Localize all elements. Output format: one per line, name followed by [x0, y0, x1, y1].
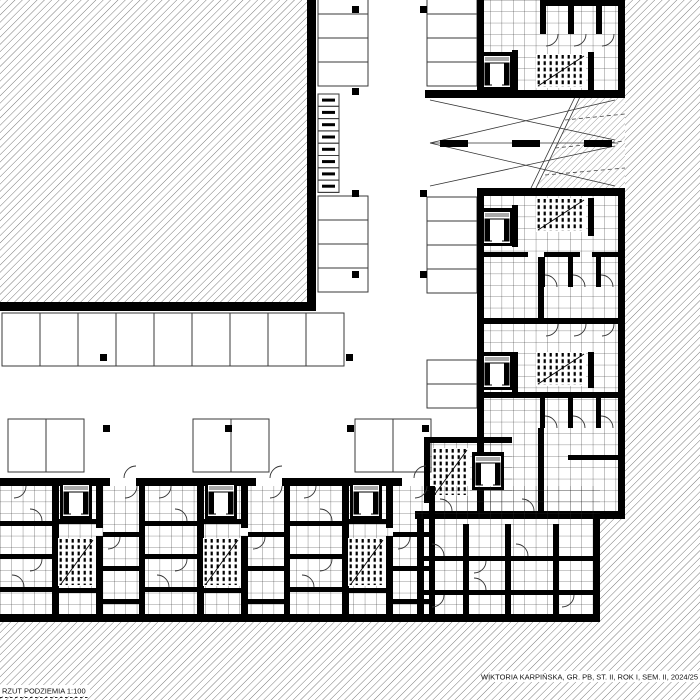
floor-plan-drawing: RZUT PODZIEMIA 1:100 WIKTORIA KARPIŃSKA,…: [0, 0, 700, 700]
drawing-title: RZUT PODZIEMIA 1:100: [2, 687, 86, 696]
ramp-lane-mark: [584, 140, 612, 147]
drawing-credits: WIKTORIA KARPIŃSKA, GR. PB, ST. II, ROK …: [481, 673, 698, 682]
ramp-lane-mark: [512, 140, 540, 147]
bottom-wing: [0, 466, 600, 622]
floor-plan-sheet: RZUT PODZIEMIA 1:100 WIKTORIA KARPIŃSKA,…: [0, 0, 700, 700]
ramp-lane-mark: [440, 140, 468, 147]
